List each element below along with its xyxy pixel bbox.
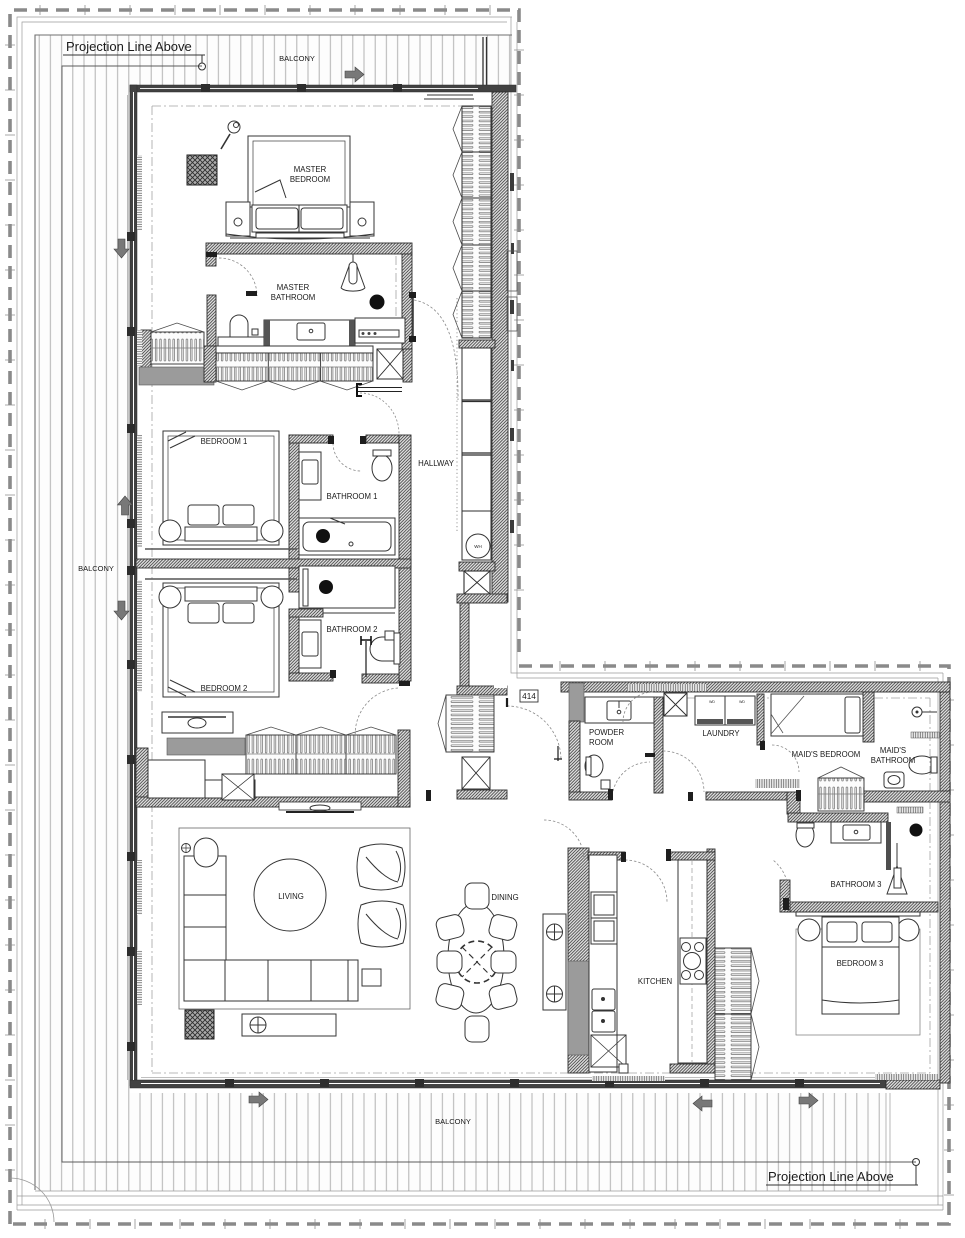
svg-text:MAID'S BEDROOM: MAID'S BEDROOM <box>792 750 861 759</box>
svg-text:MASTER: MASTER <box>277 283 310 292</box>
svg-text:BEDROOM 1: BEDROOM 1 <box>201 437 248 446</box>
svg-text:HALLWAY: HALLWAY <box>418 459 455 468</box>
svg-text:DINING: DINING <box>491 893 518 902</box>
svg-text:414: 414 <box>522 692 536 701</box>
svg-text:POWDER: POWDER <box>589 728 624 737</box>
svg-text:MAID'S: MAID'S <box>880 746 906 755</box>
svg-text:BATHROOM 1: BATHROOM 1 <box>327 492 378 501</box>
svg-text:BATHROOM: BATHROOM <box>871 756 915 765</box>
svg-text:BALCONY: BALCONY <box>78 564 114 573</box>
svg-text:Projection Line Above: Projection Line Above <box>768 1169 894 1184</box>
svg-text:LIVING: LIVING <box>278 892 304 901</box>
svg-text:WD: WD <box>739 700 745 704</box>
svg-text:BALCONY: BALCONY <box>279 54 315 63</box>
svg-text:MASTER: MASTER <box>294 165 327 174</box>
svg-text:WD: WD <box>709 700 715 704</box>
svg-text:BALCONY: BALCONY <box>435 1117 471 1126</box>
svg-text:BEDROOM 2: BEDROOM 2 <box>201 684 248 693</box>
svg-text:BATHROOM 3: BATHROOM 3 <box>831 880 882 889</box>
svg-text:KITCHEN: KITCHEN <box>638 977 672 986</box>
svg-text:BATHROOM: BATHROOM <box>271 293 315 302</box>
svg-text:BEDROOM: BEDROOM <box>290 175 330 184</box>
svg-text:ROOM: ROOM <box>589 738 613 747</box>
svg-text:LAUNDRY: LAUNDRY <box>702 729 740 738</box>
svg-text:WH: WH <box>474 544 482 549</box>
svg-text:BEDROOM 3: BEDROOM 3 <box>837 959 884 968</box>
svg-text:Projection Line Above: Projection Line Above <box>66 39 192 54</box>
svg-text:BATHROOM 2: BATHROOM 2 <box>327 625 378 634</box>
